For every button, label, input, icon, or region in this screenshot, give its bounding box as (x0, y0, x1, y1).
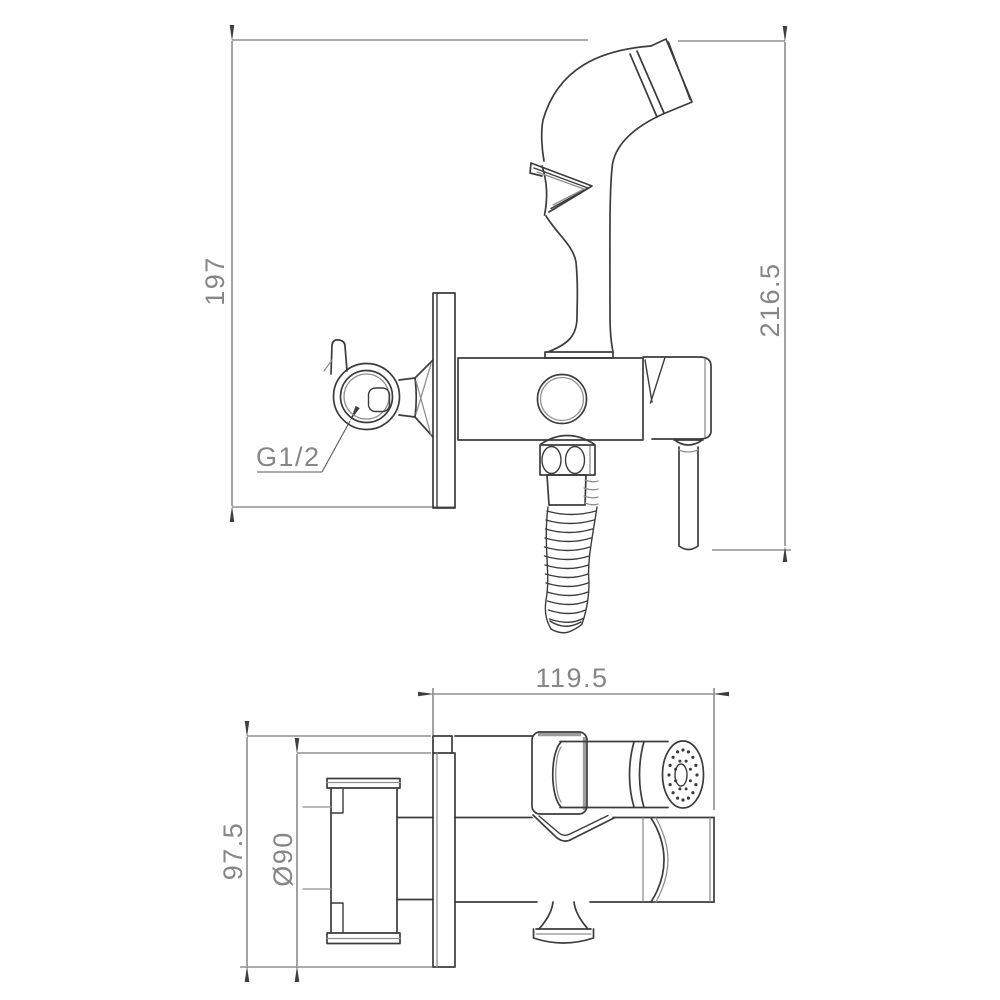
fitting-escutcheon (415, 360, 433, 437)
holder-handle-rod (674, 440, 703, 550)
spray-center (675, 764, 687, 786)
nozzle-band-top (630, 742, 645, 808)
dim-front-height-right: 216.5 (678, 41, 791, 550)
hose-nut-front (540, 436, 598, 506)
thread-callout: G1/2 (256, 421, 350, 472)
dim-label-216-5: 216.5 (755, 262, 785, 337)
front-view: 197 216.5 G1/2 (200, 39, 791, 633)
handle-flange (545, 352, 613, 358)
top-view: 119.5 97.5 Ø90 (218, 663, 714, 967)
spray-holes (667, 748, 698, 801)
nozzle-band (630, 51, 664, 117)
connector-pipe-top (397, 818, 433, 900)
trigger-lever (530, 163, 592, 212)
push-knob-top (534, 902, 594, 943)
holder-front (643, 357, 711, 550)
dim-plate-diameter: Ø90 (268, 753, 431, 966)
drawing-canvas: 197 216.5 G1/2 (0, 0, 1000, 1000)
drawing-sheet: 197 216.5 G1/2 (0, 0, 1000, 1000)
dim-label-197: 197 (200, 256, 230, 306)
dim-front-height-left: 197 (200, 40, 588, 507)
wall-plate-top (433, 736, 532, 967)
dim-label-97-5: 97.5 (218, 822, 248, 881)
leader-line (322, 421, 350, 472)
holder-clamp-top (533, 815, 614, 841)
push-knob-front (538, 375, 587, 424)
shutoff-lever (331, 340, 347, 374)
sprayer-head-front (530, 39, 692, 358)
valve-body-front (458, 358, 643, 440)
hose-coil (545, 507, 598, 633)
sprayer-head-top (532, 732, 704, 841)
dim-top-depth: 97.5 (218, 736, 433, 967)
dim-label-119-5: 119.5 (535, 663, 608, 693)
inlet-fitting-top (303, 779, 433, 944)
connector-pipe (399, 378, 415, 417)
wall-plate-front (433, 293, 455, 508)
thread-label: G1/2 (256, 442, 321, 472)
inlet-fitting-front (324, 340, 433, 437)
dim-label-dia-90: Ø90 (268, 831, 298, 887)
valve-body-top (455, 818, 714, 944)
wall-nipple (433, 736, 452, 753)
spray-face (663, 741, 704, 808)
